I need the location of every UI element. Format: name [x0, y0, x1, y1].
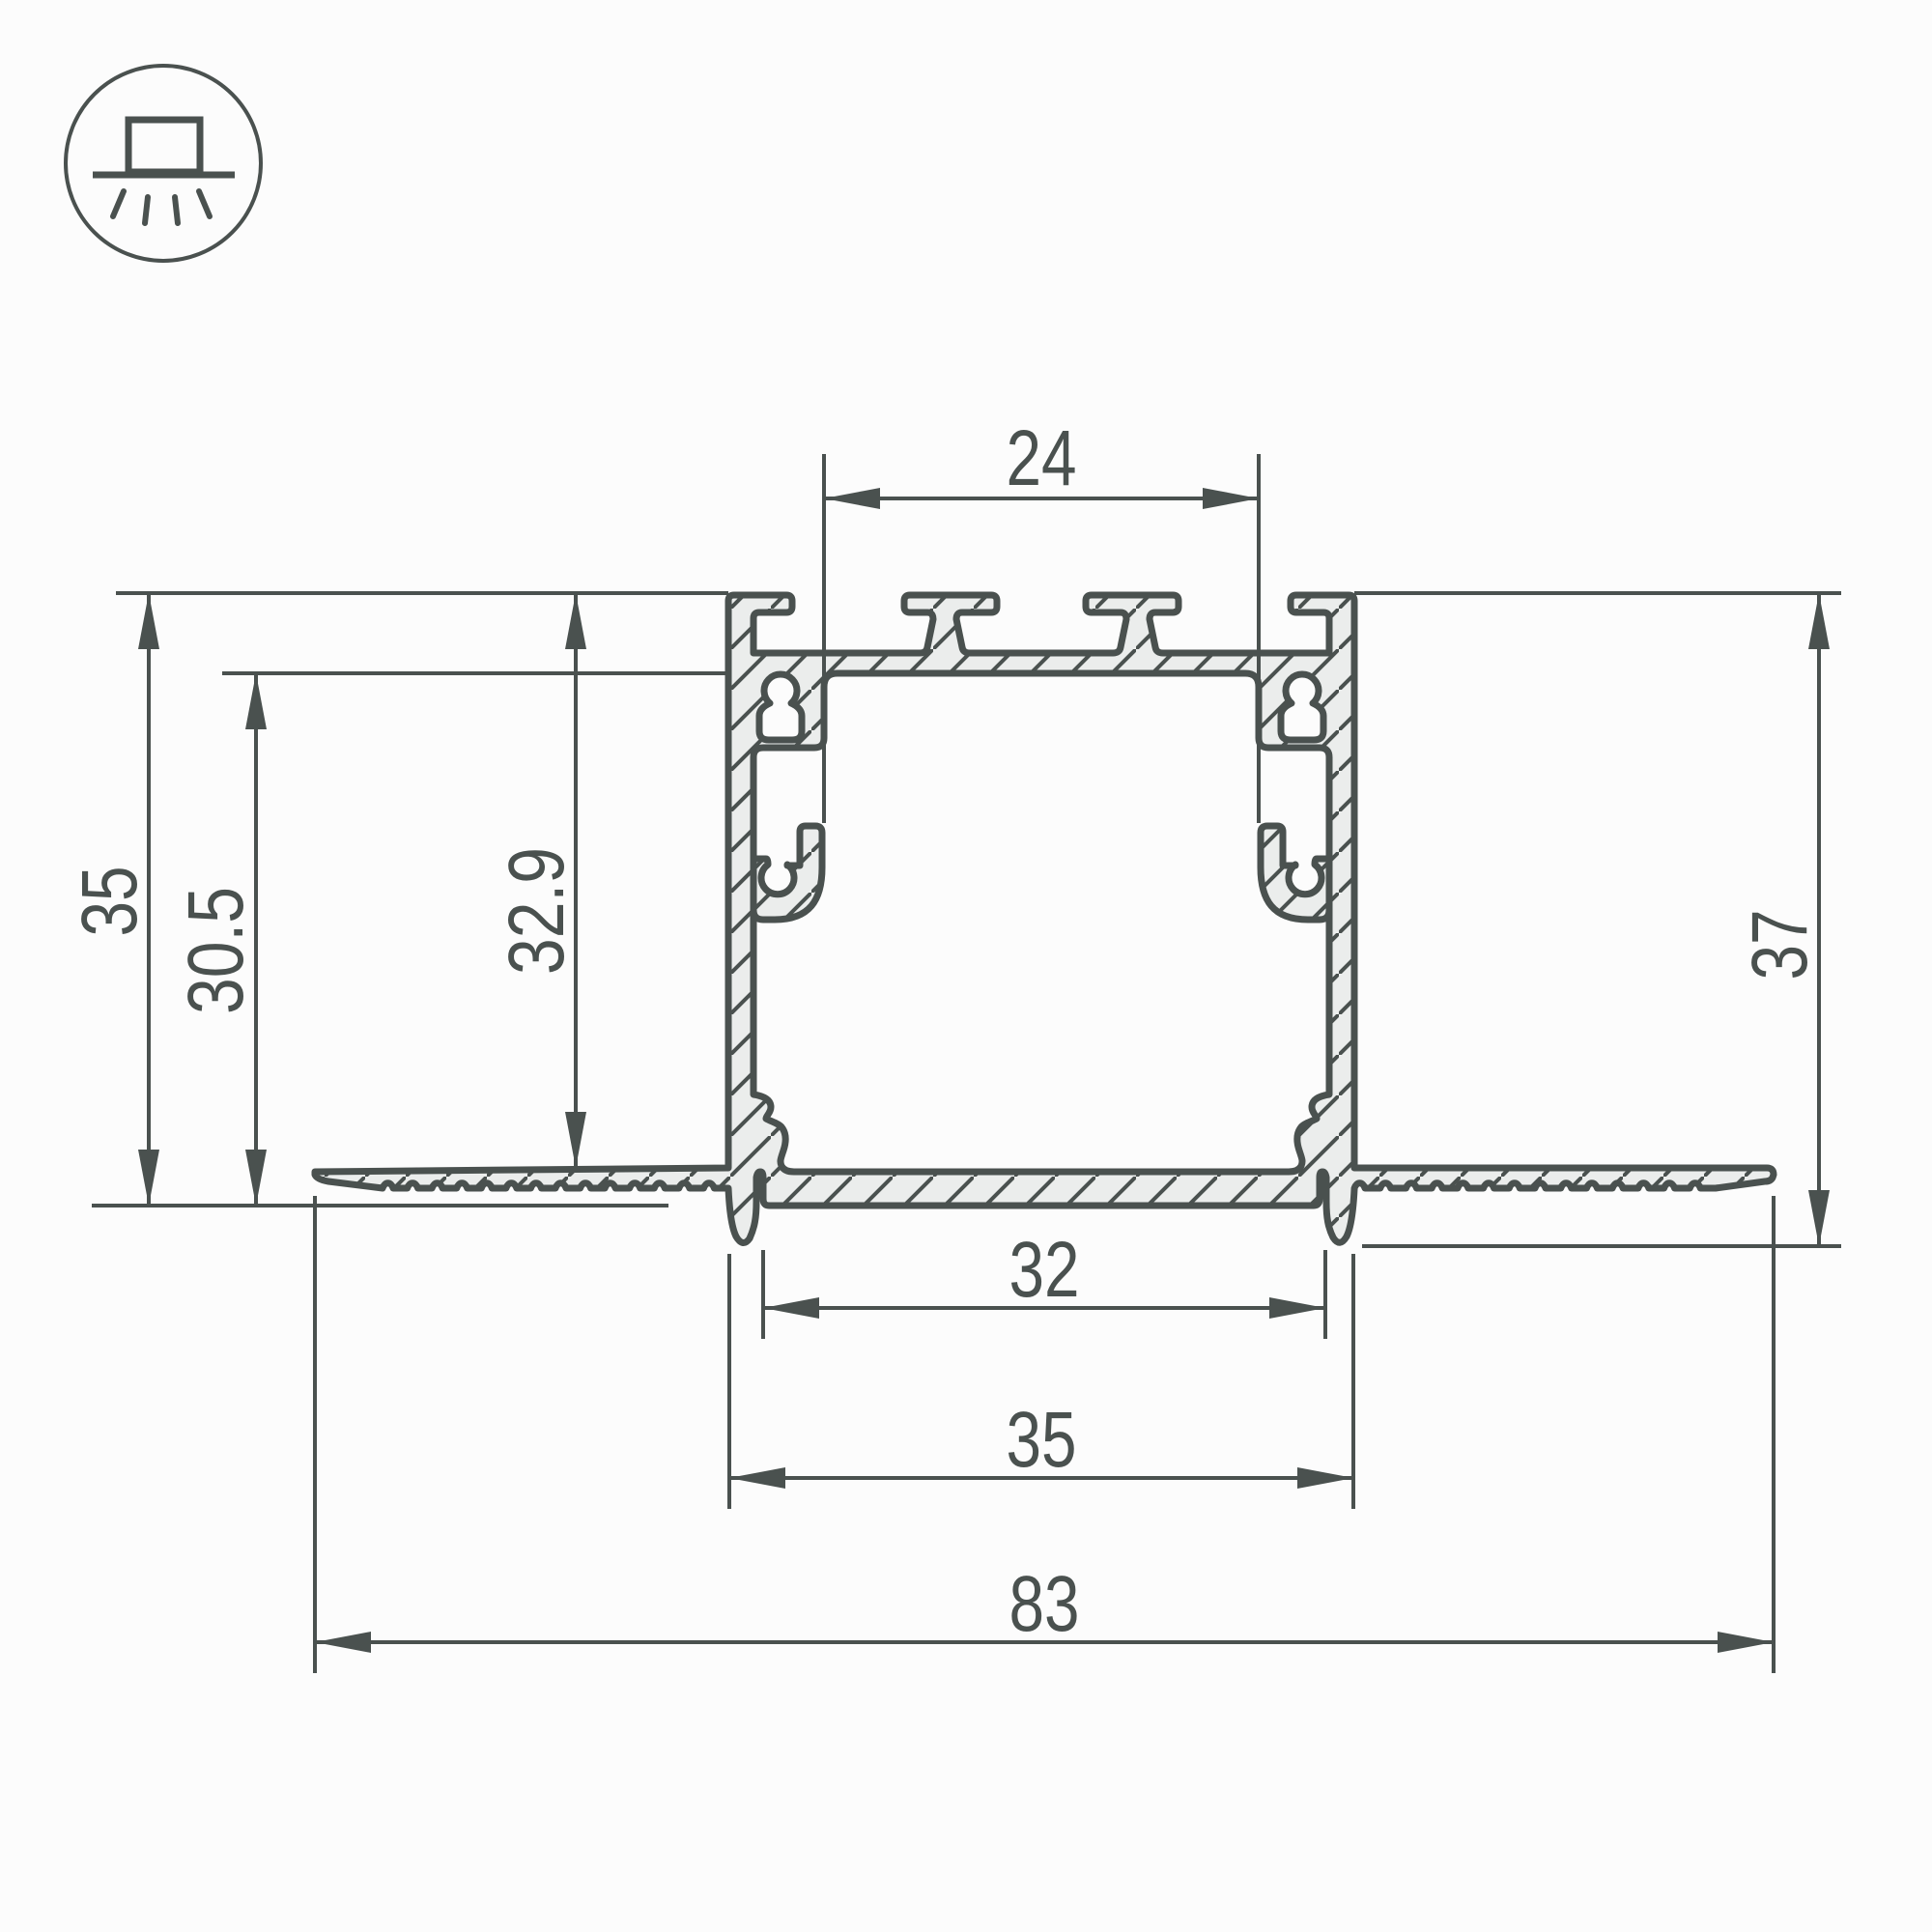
svg-text:35: 35: [66, 867, 154, 937]
svg-text:32: 32: [1009, 1226, 1080, 1314]
svg-text:24: 24: [1007, 414, 1077, 502]
svg-text:30.5: 30.5: [172, 887, 260, 1014]
svg-text:32.9: 32.9: [493, 847, 581, 975]
svg-text:37: 37: [1736, 910, 1824, 980]
svg-text:35: 35: [1007, 1396, 1077, 1484]
svg-text:83: 83: [1009, 1560, 1080, 1648]
